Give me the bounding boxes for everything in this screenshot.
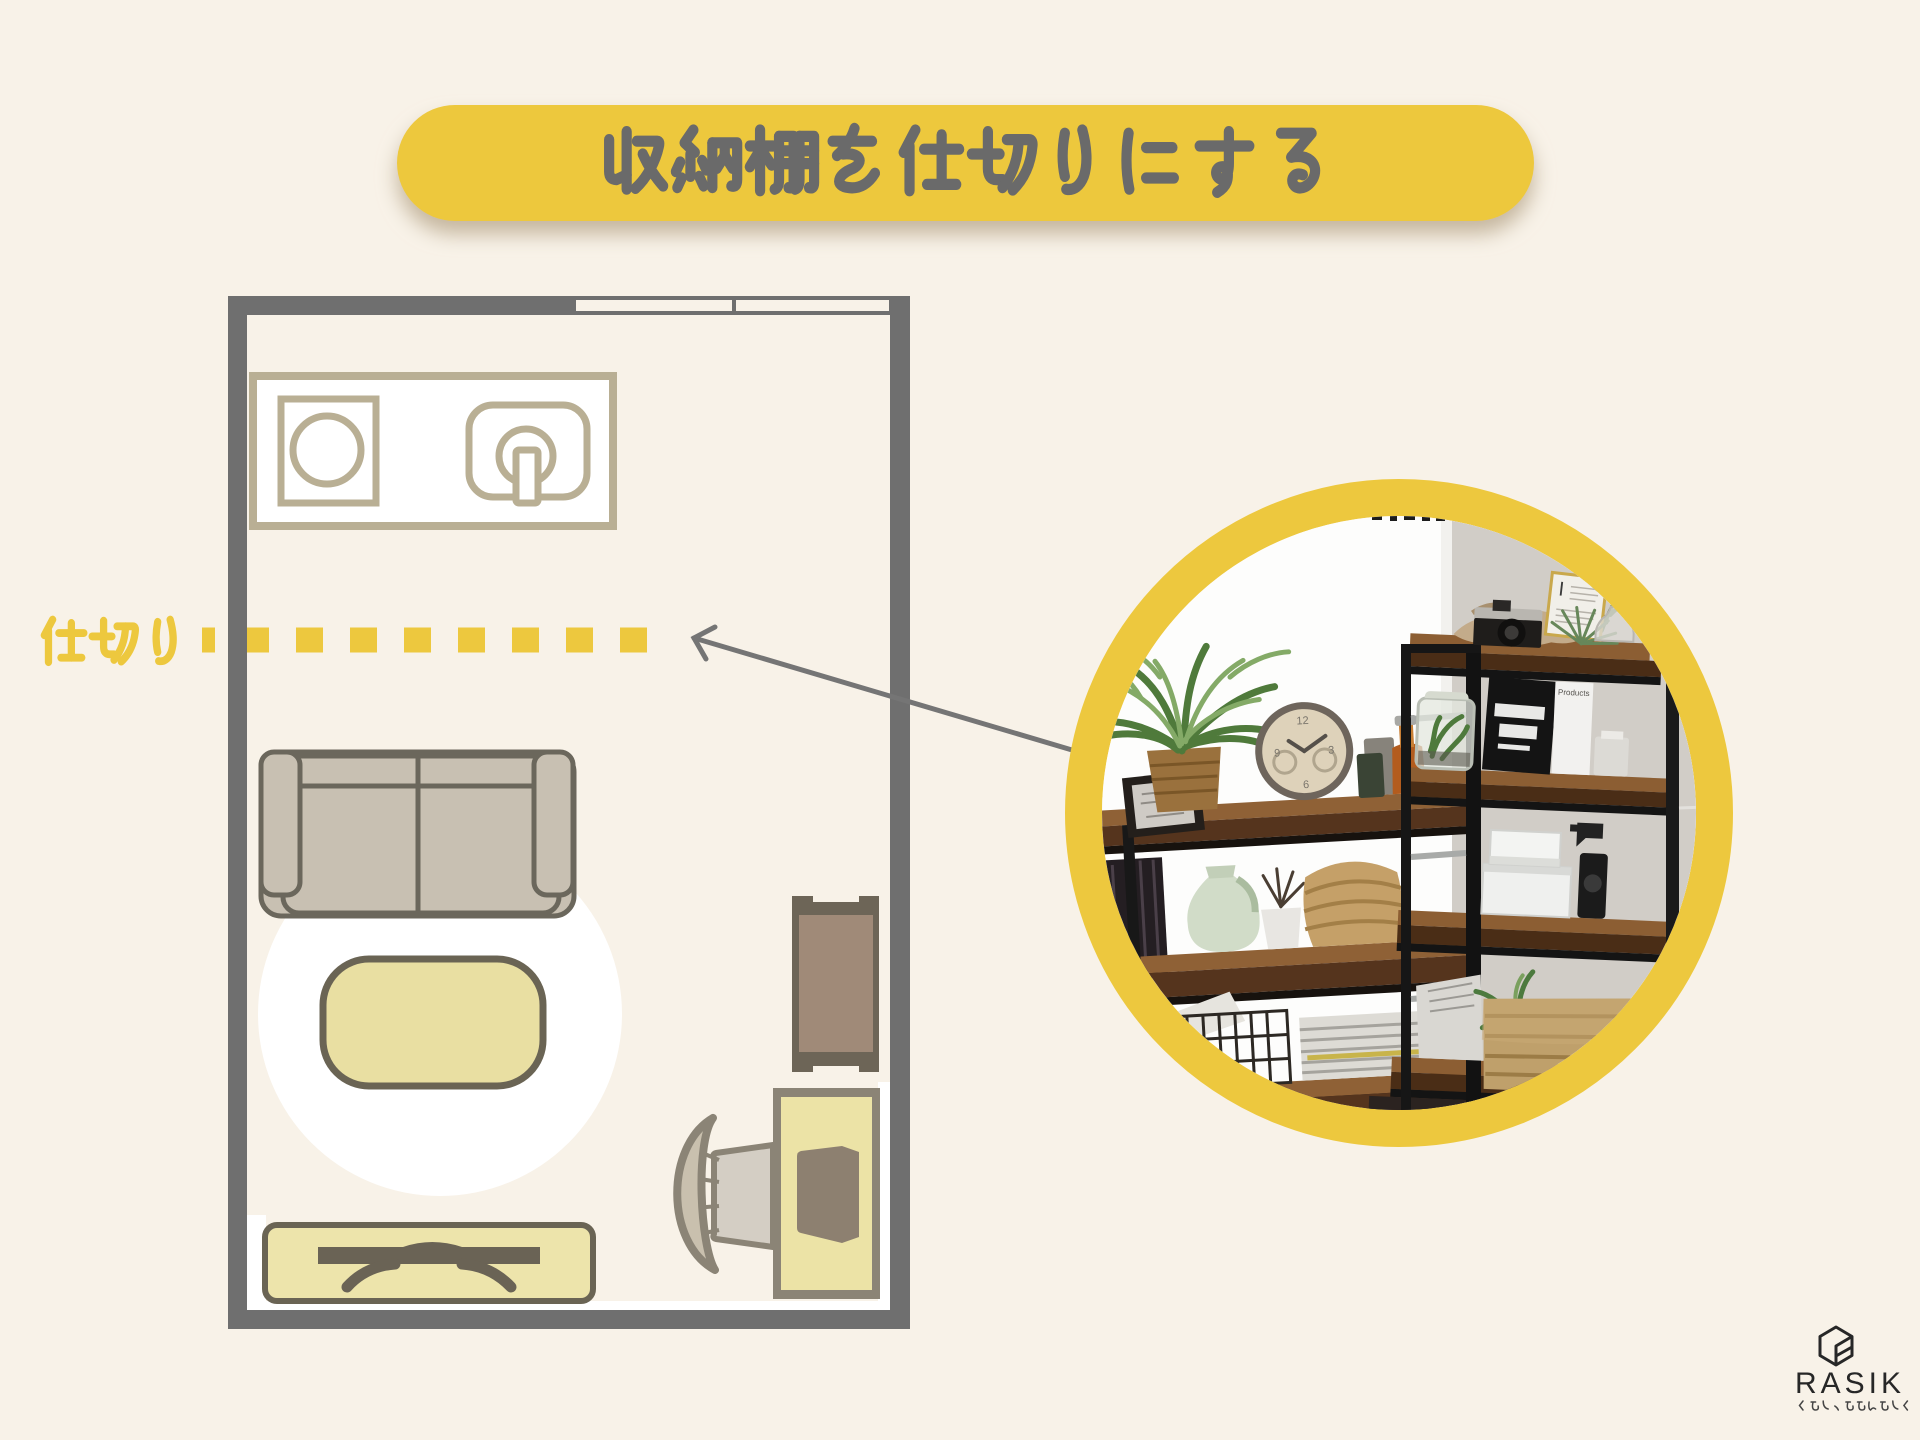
- svg-text:9: 9: [1274, 747, 1281, 759]
- svg-text:RASIK: RASIK: [1795, 1367, 1905, 1400]
- svg-text:12: 12: [1296, 715, 1309, 728]
- svg-text:3: 3: [1328, 744, 1335, 756]
- svg-text:6: 6: [1303, 779, 1310, 791]
- svg-text:Products: Products: [1558, 688, 1590, 698]
